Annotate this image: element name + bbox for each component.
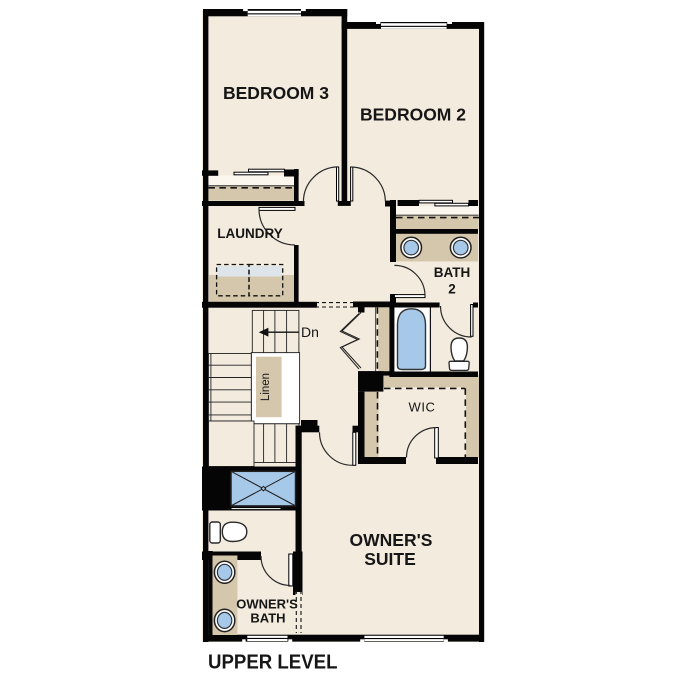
- svg-text:BEDROOM 2: BEDROOM 2: [360, 105, 466, 125]
- svg-text:BEDROOM 3: BEDROOM 3: [223, 83, 329, 103]
- svg-text:SUITE: SUITE: [364, 549, 416, 569]
- svg-text:BATH: BATH: [434, 265, 471, 280]
- svg-text:BATH: BATH: [250, 611, 285, 626]
- svg-text:Linen: Linen: [260, 373, 272, 401]
- svg-text:LAUNDRY: LAUNDRY: [217, 226, 283, 241]
- svg-text:2: 2: [448, 282, 456, 297]
- svg-text:OWNER'S: OWNER'S: [236, 597, 298, 612]
- svg-text:OWNER'S: OWNER'S: [350, 530, 433, 550]
- svg-text:UPPER LEVEL: UPPER LEVEL: [208, 652, 338, 674]
- svg-text:Dn: Dn: [301, 324, 319, 340]
- svg-text:WIC: WIC: [408, 400, 435, 415]
